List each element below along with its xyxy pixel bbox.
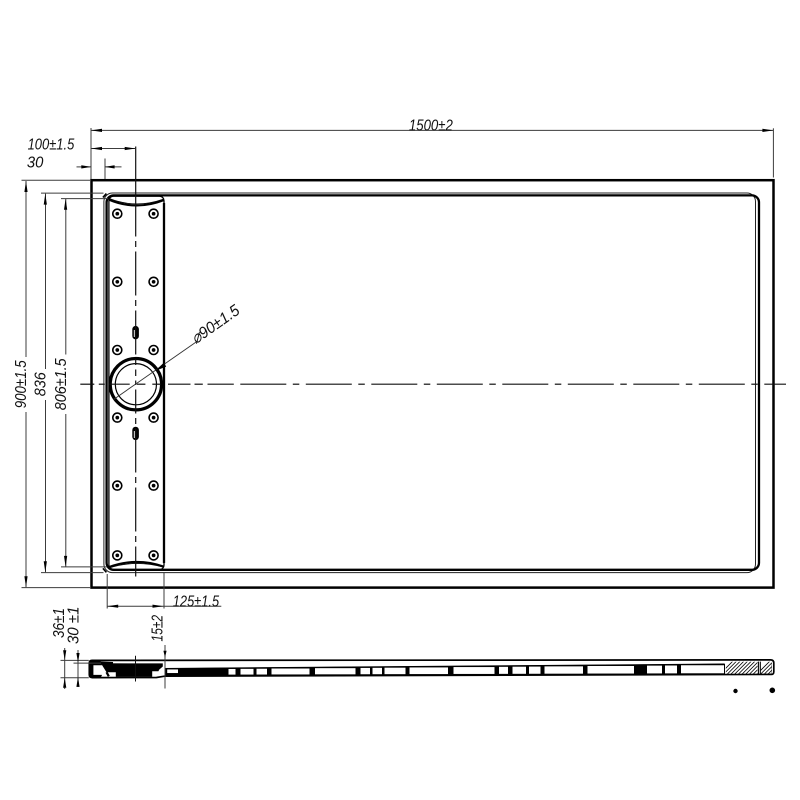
svg-text:806±1.5: 806±1.5 — [53, 358, 70, 410]
svg-text:15±2: 15±2 — [149, 615, 166, 642]
svg-text:836: 836 — [33, 372, 50, 396]
svg-text:125±1.5: 125±1.5 — [173, 593, 219, 610]
svg-text:30 ±1: 30 ±1 — [65, 607, 82, 645]
svg-text:100±1.5: 100±1.5 — [28, 137, 75, 154]
svg-text:1500±2: 1500±2 — [409, 118, 453, 135]
svg-text:900±1.5: 900±1.5 — [13, 360, 30, 408]
svg-text:30: 30 — [27, 155, 44, 172]
